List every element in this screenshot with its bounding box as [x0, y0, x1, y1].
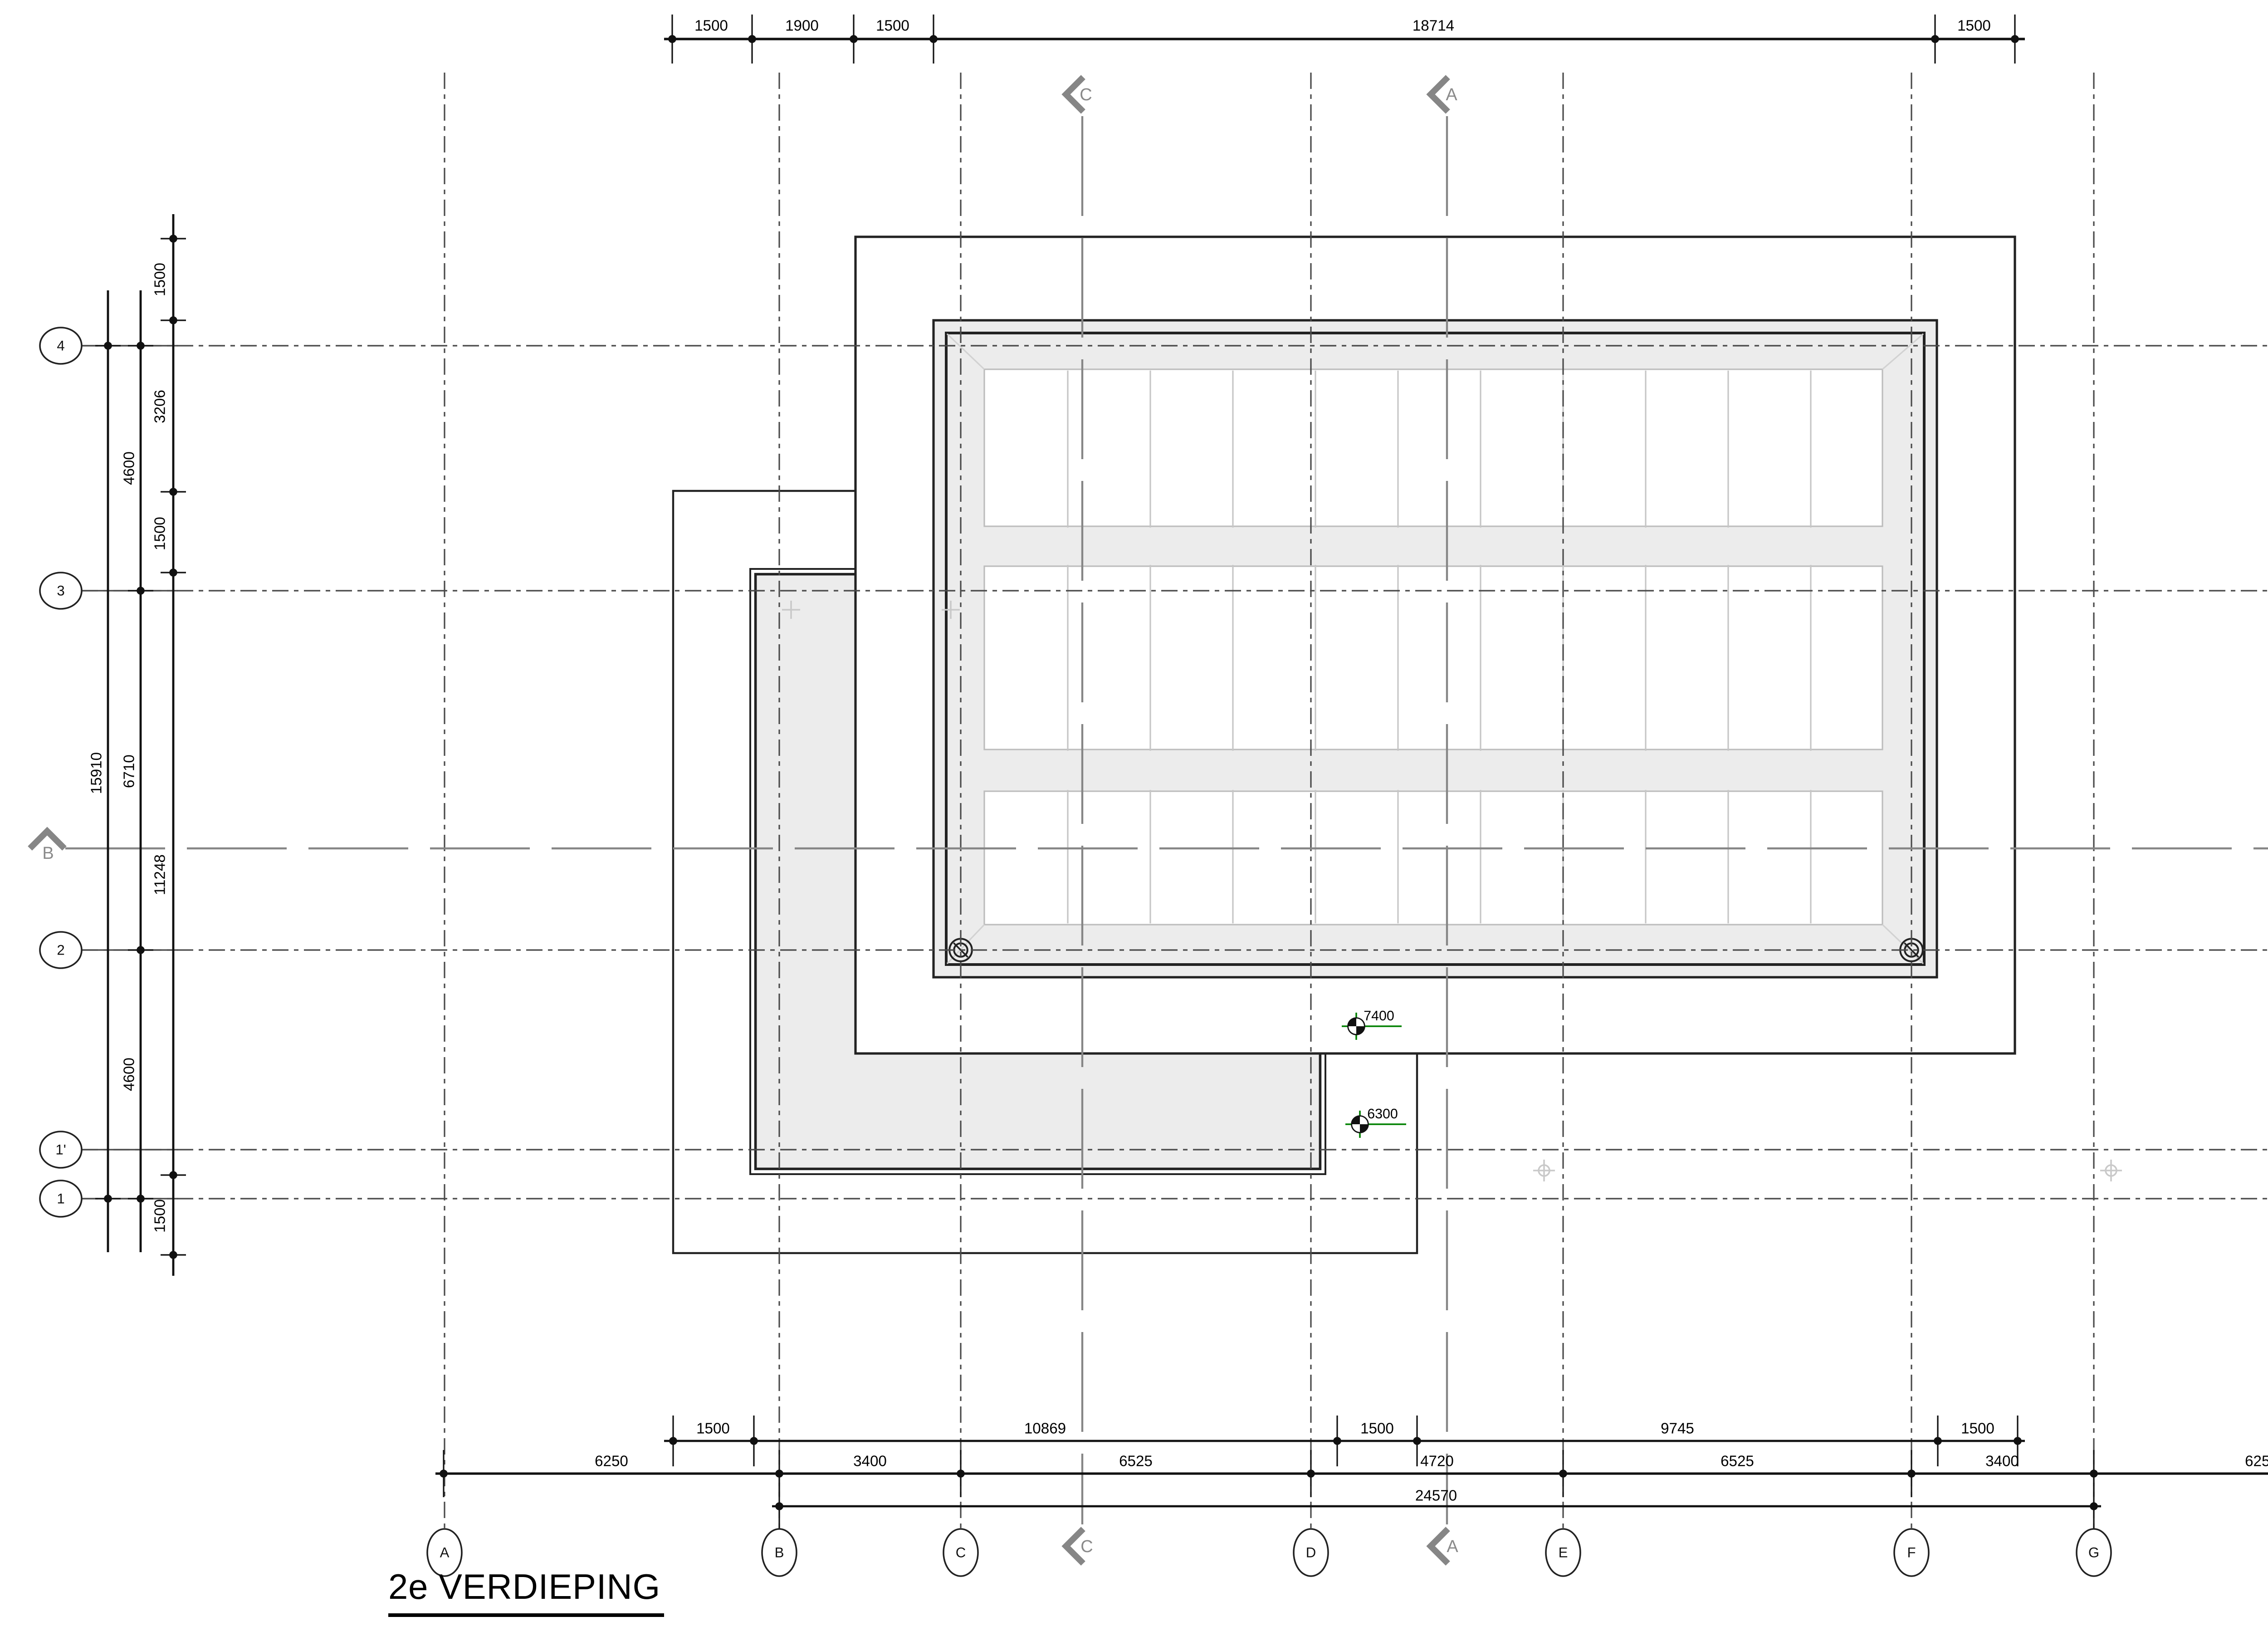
- dim-label: 11248: [152, 853, 167, 894]
- dim-label: 1500: [152, 1198, 167, 1232]
- dim-label: 4720: [1420, 1453, 1454, 1468]
- section-letter-a-bottom: A: [1447, 1538, 1458, 1556]
- plan-drawing: [0, 0, 2268, 1641]
- dim-label: 1500: [1957, 18, 1991, 33]
- grid-bubble-3: 3: [57, 583, 64, 598]
- dim-label: 18714: [1413, 18, 1454, 33]
- dim-label-total: 24570: [1415, 1487, 1457, 1502]
- dim-label: 9745: [1661, 1421, 1694, 1435]
- dim-label: 4600: [120, 1058, 135, 1091]
- grid-bubble-1p: 1': [55, 1142, 66, 1156]
- grid-bubble-g: G: [2088, 1545, 2099, 1559]
- dim-label: 3400: [1985, 1453, 2019, 1468]
- grid-bubble-2: 2: [57, 943, 64, 957]
- dim-label: 4600: [120, 451, 135, 485]
- dim-label: 6250: [2245, 1453, 2268, 1468]
- page-title: 2e VERDIEPING: [388, 1568, 664, 1617]
- dim-label: 6525: [1119, 1453, 1153, 1468]
- grid-bubble-d: D: [1306, 1545, 1316, 1559]
- grid-bubble-1: 1: [57, 1191, 64, 1205]
- dim-label: 1500: [694, 18, 728, 33]
- dim-label: 3400: [853, 1453, 887, 1468]
- grid-bubbles-left: [40, 328, 82, 1217]
- grid-bubble-e: E: [1559, 1545, 1568, 1559]
- dim-label: 6525: [1721, 1453, 1754, 1468]
- section-letter-a-top: A: [1446, 87, 1457, 104]
- grid-bubble-c: C: [956, 1545, 966, 1559]
- dim-label: 1500: [696, 1421, 730, 1435]
- dim-label: 1500: [152, 516, 167, 549]
- dim-label: 1900: [785, 18, 819, 33]
- level-value: 7400: [1364, 1009, 1394, 1022]
- solar-panel-rows: [984, 369, 1882, 925]
- grid-bubble-a: A: [440, 1545, 450, 1559]
- dim-label: 1500: [876, 18, 909, 33]
- dim-label: 3206: [152, 390, 167, 423]
- grid-bubbles-bottom: [427, 1529, 2268, 1576]
- dim-label: 15910: [88, 751, 103, 793]
- grid-bubble-4: 4: [57, 338, 64, 353]
- level-value: 6300: [1367, 1107, 1398, 1120]
- dim-label: 6710: [120, 754, 135, 787]
- dim-label: 1500: [152, 263, 167, 296]
- section-letter-c-bottom: C: [1080, 1538, 1093, 1556]
- grid-bubble-f: F: [1907, 1545, 1916, 1559]
- dim-label: 6250: [595, 1453, 628, 1468]
- section-letter-b-left: B: [42, 845, 54, 862]
- section-letter-c-top: C: [1080, 87, 1092, 104]
- dim-label: 1500: [1360, 1421, 1394, 1435]
- grid-bubble-b: B: [775, 1545, 784, 1559]
- dim-label: 10869: [1024, 1421, 1066, 1435]
- floor-plan-canvas: 1500 1900 1500 18714 1500 1500 3206 1500…: [0, 0, 2268, 1641]
- dim-label: 1500: [1961, 1421, 1994, 1435]
